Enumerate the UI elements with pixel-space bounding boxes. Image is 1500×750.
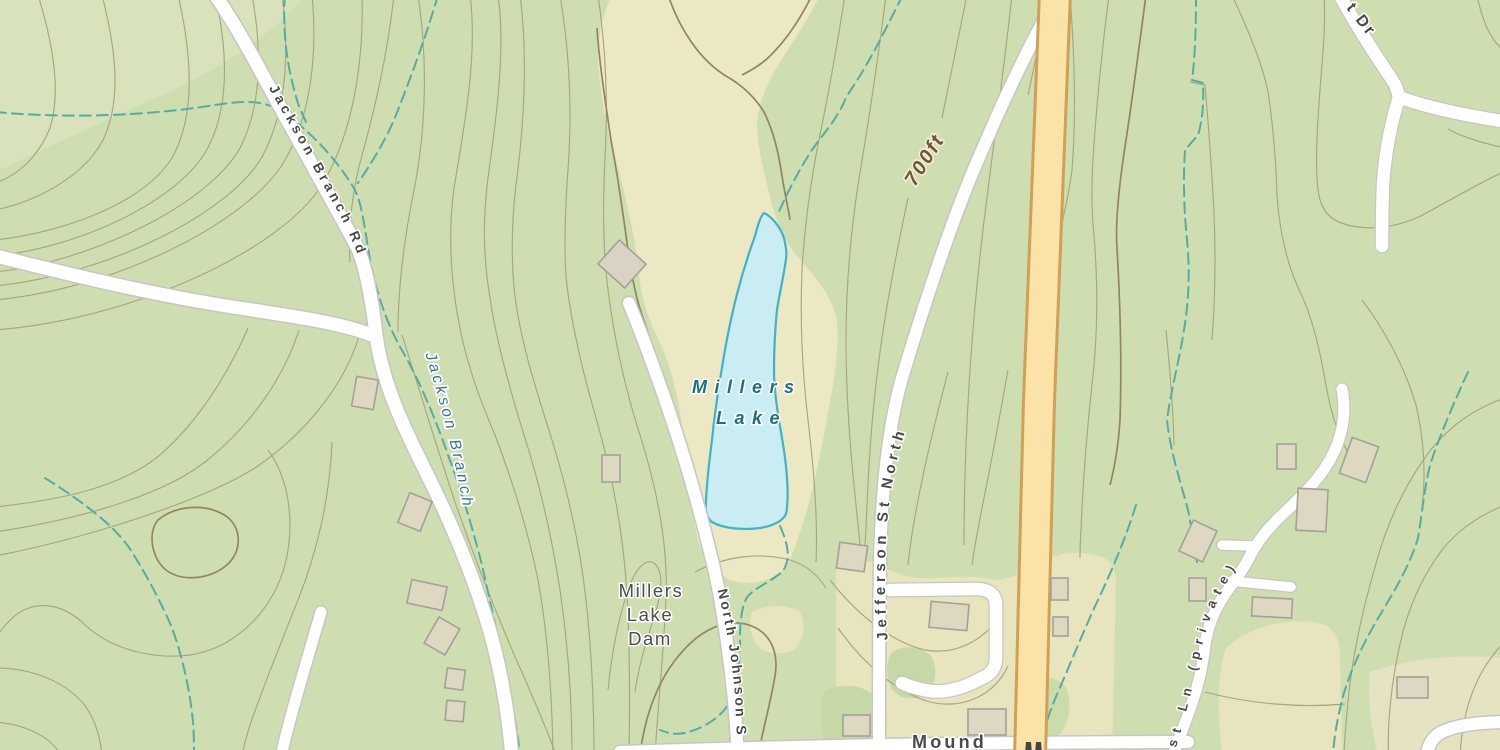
svg-text:Lake: Lake bbox=[716, 408, 787, 428]
svg-text:Mound: Mound bbox=[912, 732, 987, 750]
svg-text:Lake: Lake bbox=[627, 604, 674, 625]
svg-text:Millers: Millers bbox=[619, 580, 684, 601]
svg-text:Dam: Dam bbox=[628, 628, 672, 649]
svg-text:Millers: Millers bbox=[692, 377, 802, 397]
